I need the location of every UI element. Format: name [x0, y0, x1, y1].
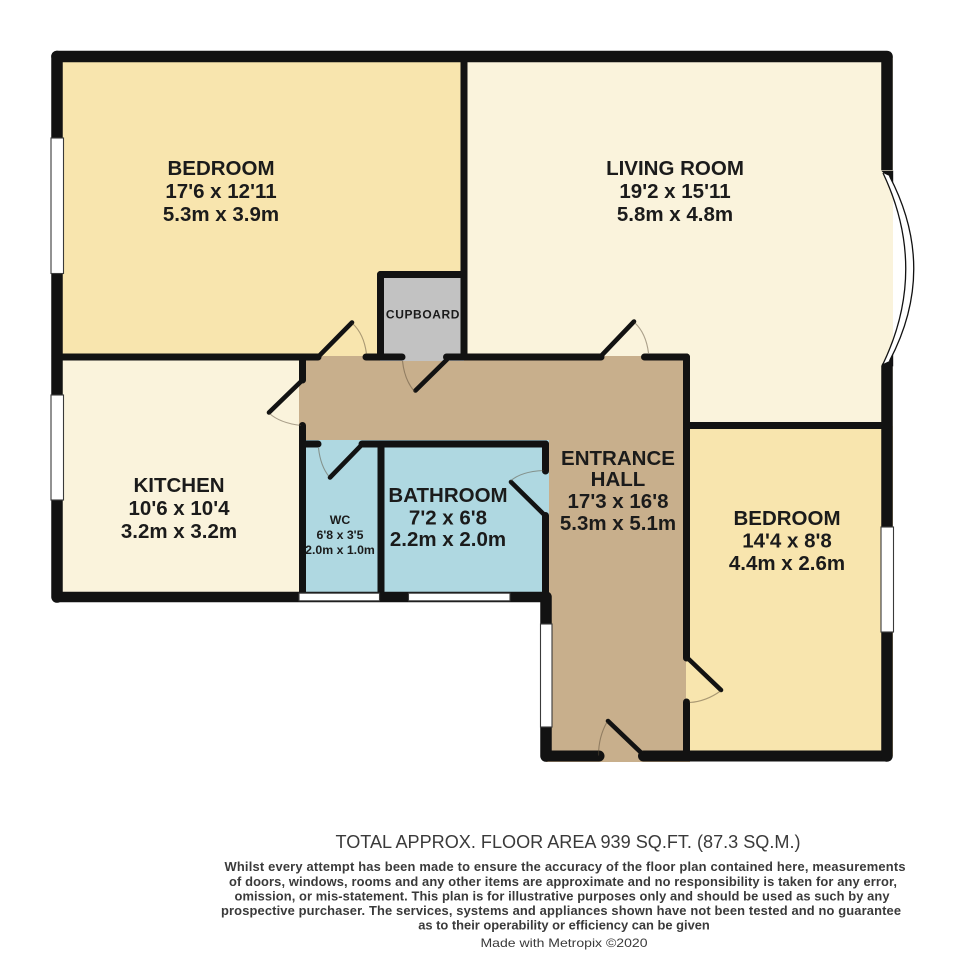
svg-text:ENTRANCE: ENTRANCE	[561, 447, 675, 470]
svg-text:2.2m x 2.0m: 2.2m x 2.0m	[390, 528, 506, 551]
svg-text:CUPBOARD: CUPBOARD	[386, 308, 460, 322]
svg-text:14'4 x 8'8: 14'4 x 8'8	[742, 530, 832, 553]
svg-text:5.3m x 5.1m: 5.3m x 5.1m	[560, 512, 676, 535]
svg-text:3.2m x 3.2m: 3.2m x 3.2m	[121, 520, 237, 543]
svg-text:prospective purchaser. The ser: prospective purchaser. The services, sys…	[221, 903, 901, 918]
svg-text:10'6 x 10'4: 10'6 x 10'4	[129, 497, 231, 520]
svg-text:WC: WC	[330, 513, 351, 527]
svg-text:as to their operability or eff: as to their operability or efficiency ca…	[418, 918, 710, 933]
svg-text:17'3 x 16'8: 17'3 x 16'8	[568, 490, 669, 513]
svg-text:7'2 x 6'8: 7'2 x 6'8	[409, 507, 487, 530]
svg-text:6'8 x 3'5: 6'8 x 3'5	[317, 528, 364, 542]
svg-text:17'6 x 12'11: 17'6 x 12'11	[165, 180, 276, 203]
svg-text:Made with Metropix ©2020: Made with Metropix ©2020	[481, 936, 648, 950]
svg-text:BEDROOM: BEDROOM	[733, 507, 840, 530]
svg-text:KITCHEN: KITCHEN	[133, 474, 224, 497]
svg-text:4.4m x 2.6m: 4.4m x 2.6m	[729, 552, 845, 575]
svg-text:of doors, windows, rooms and a: of doors, windows, rooms and any other i…	[229, 874, 897, 889]
svg-text:LIVING ROOM: LIVING ROOM	[606, 157, 744, 180]
svg-text:BATHROOM: BATHROOM	[388, 484, 507, 507]
svg-text:Whilst every attempt has been: Whilst every attempt has been made to en…	[225, 859, 906, 874]
svg-text:5.8m x 4.8m: 5.8m x 4.8m	[617, 203, 733, 226]
svg-text:HALL: HALL	[591, 468, 646, 491]
svg-text:BEDROOM: BEDROOM	[167, 157, 274, 180]
svg-text:19'2 x 15'11: 19'2 x 15'11	[619, 180, 730, 203]
svg-text:TOTAL APPROX. FLOOR AREA 939 S: TOTAL APPROX. FLOOR AREA 939 SQ.FT. (87.…	[336, 831, 801, 852]
svg-text:5.3m x 3.9m: 5.3m x 3.9m	[163, 203, 279, 226]
svg-text:2.0m x 1.0m: 2.0m x 1.0m	[305, 543, 375, 557]
svg-text:omission, or mis-statement. Th: omission, or mis-statement. This plan is…	[235, 889, 891, 904]
